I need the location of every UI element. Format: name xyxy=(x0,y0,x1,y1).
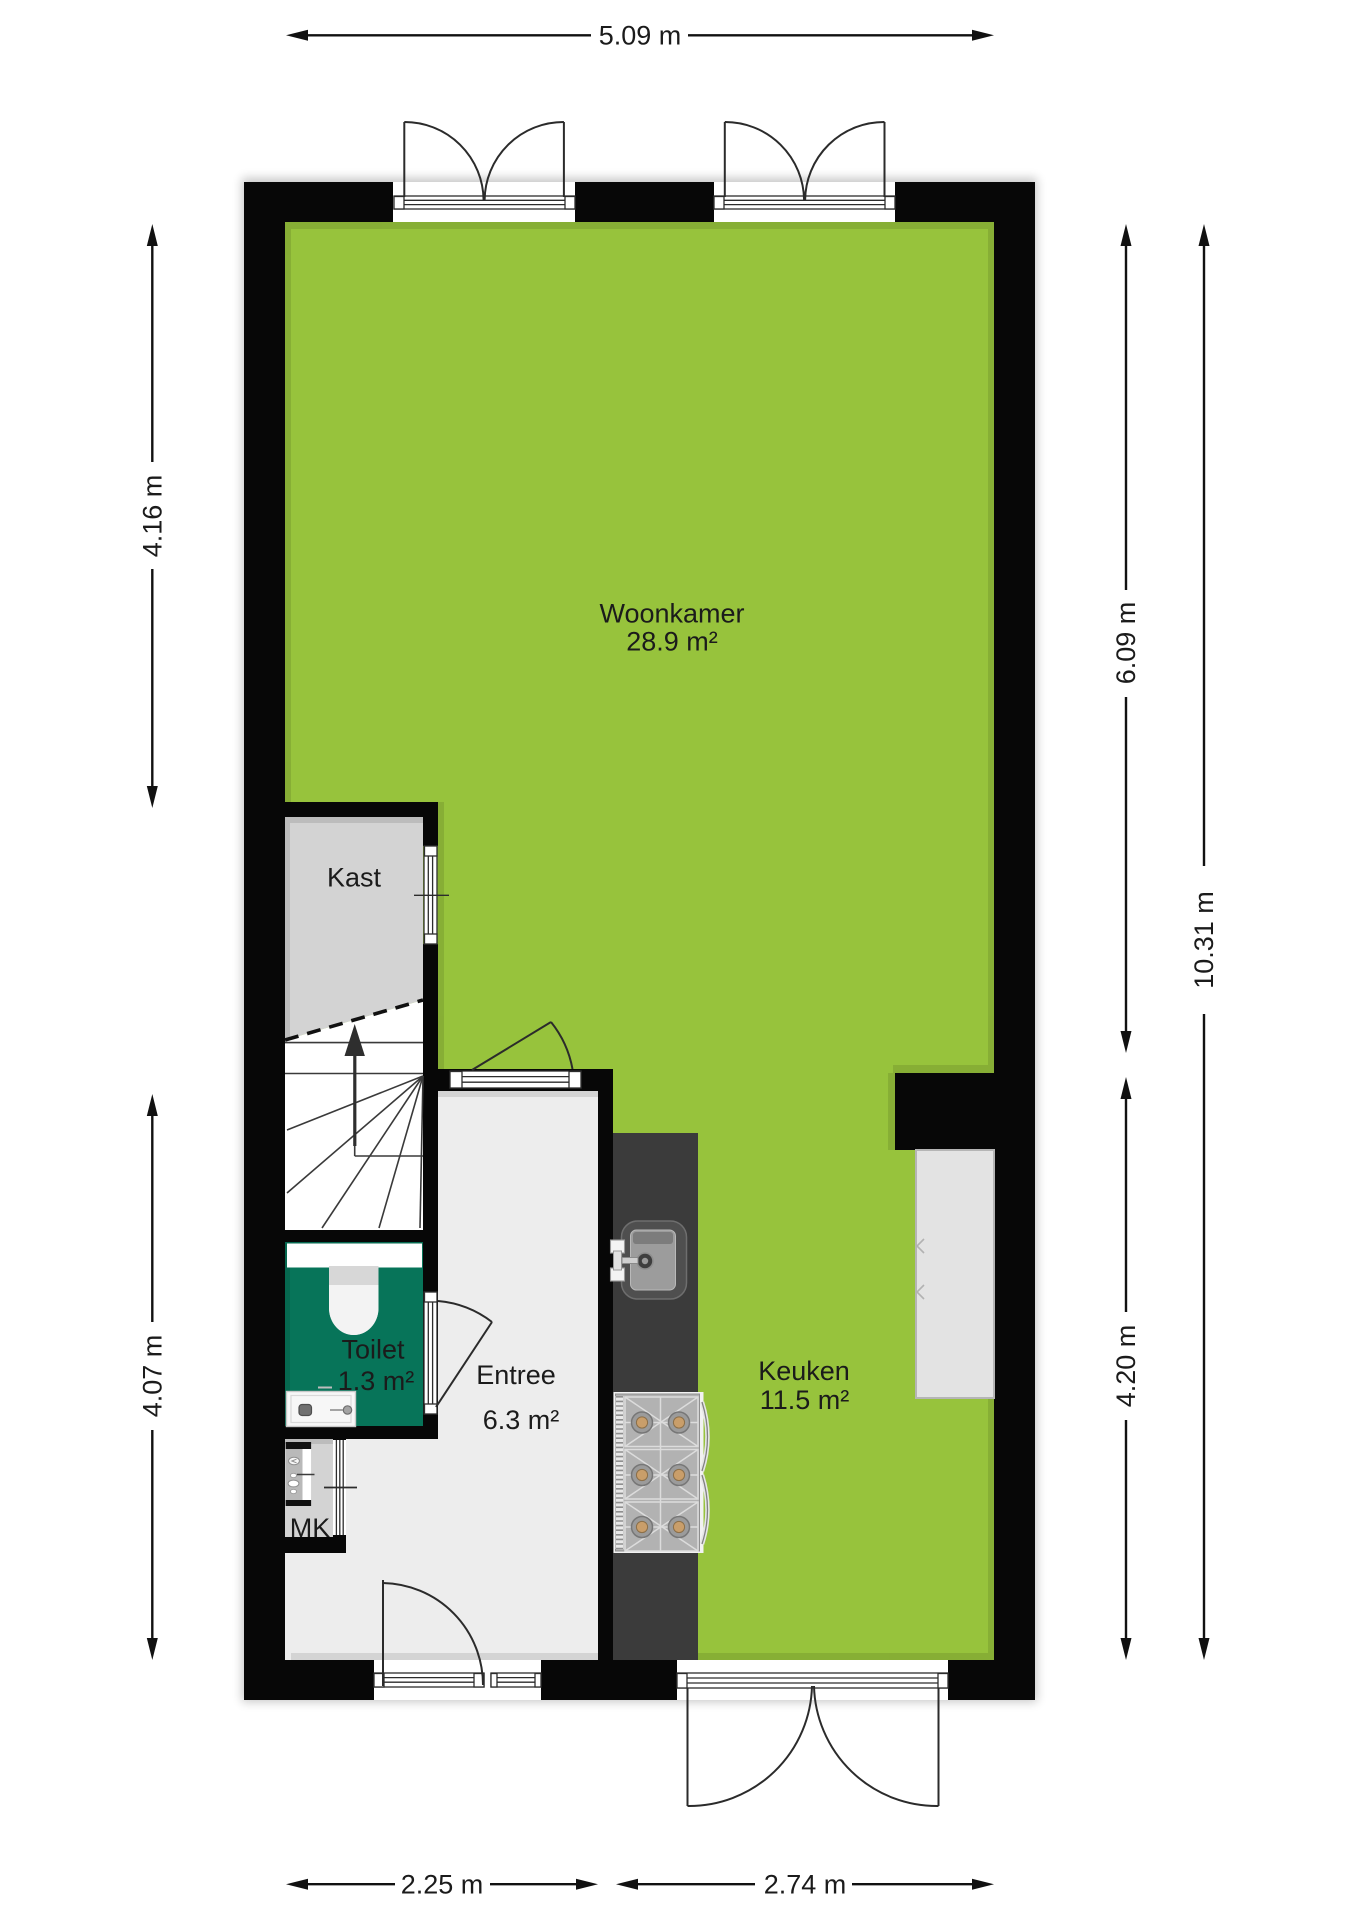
svg-text:MK: MK xyxy=(290,1513,331,1543)
svg-text:Kast: Kast xyxy=(327,863,382,893)
svg-text:1.3 m²: 1.3 m² xyxy=(338,1366,415,1396)
svg-text:2.74 m: 2.74 m xyxy=(764,1869,847,1899)
svg-text:4.16 m: 4.16 m xyxy=(138,475,168,558)
svg-text:Keuken: Keuken xyxy=(758,1356,850,1386)
svg-text:2.25 m: 2.25 m xyxy=(401,1869,484,1899)
svg-text:Woonkamer: Woonkamer xyxy=(599,599,744,629)
svg-text:4.20 m: 4.20 m xyxy=(1111,1325,1141,1408)
svg-text:10.31 m: 10.31 m xyxy=(1189,891,1219,989)
svg-text:Entree: Entree xyxy=(476,1360,556,1390)
svg-text:6.09 m: 6.09 m xyxy=(1111,602,1141,685)
svg-text:6.3 m²: 6.3 m² xyxy=(483,1405,560,1435)
svg-text:Toilet: Toilet xyxy=(341,1335,405,1365)
svg-text:11.5 m²: 11.5 m² xyxy=(760,1385,850,1415)
svg-text:5.09 m: 5.09 m xyxy=(599,21,682,51)
svg-text:4.07 m: 4.07 m xyxy=(138,1335,168,1418)
svg-text:28.9 m²: 28.9 m² xyxy=(626,627,718,657)
